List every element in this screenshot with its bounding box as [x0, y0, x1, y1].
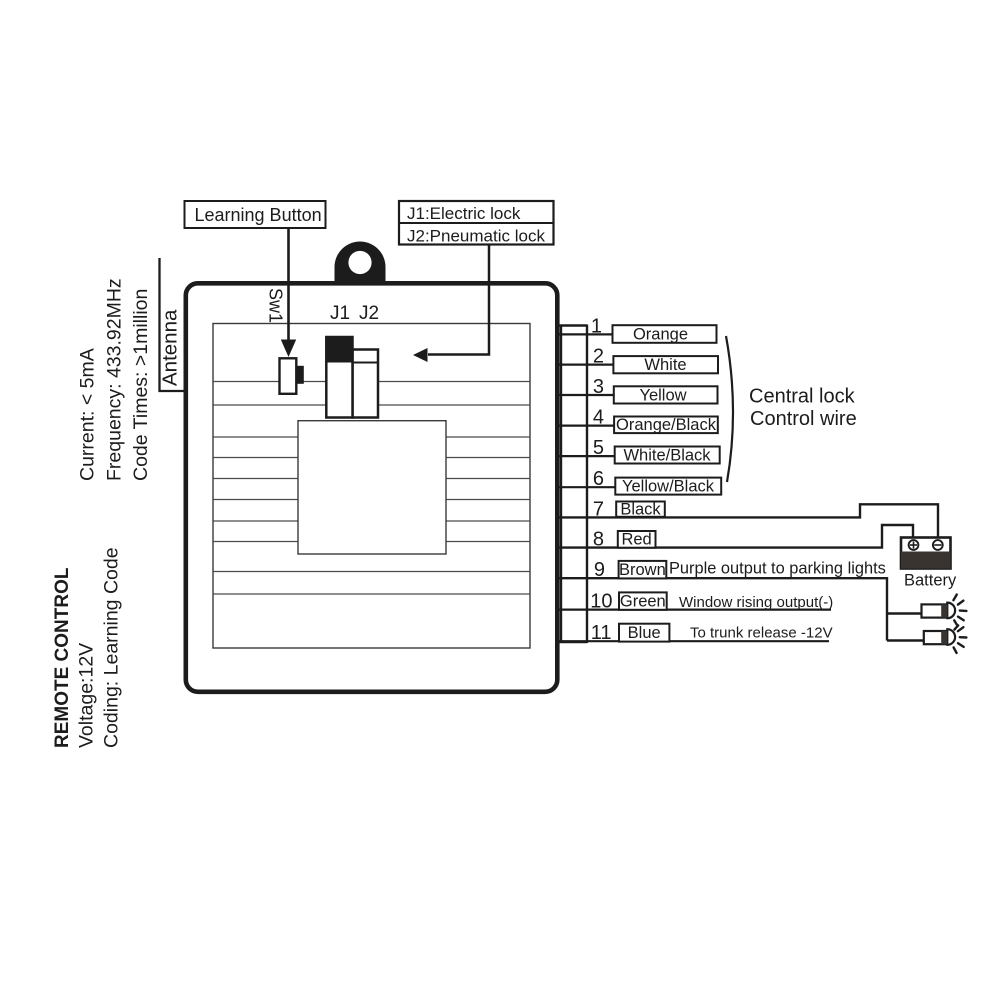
svg-text:J1: J1 [330, 303, 350, 324]
svg-text:Orange/Black: Orange/Black [616, 416, 717, 434]
svg-text:Frequency: 433.92MHz: Frequency: 433.92MHz [104, 278, 126, 481]
svg-text:2: 2 [593, 346, 604, 368]
svg-text:Control wire: Control wire [750, 408, 857, 430]
svg-text:Current: < 5mA: Current: < 5mA [77, 348, 99, 481]
svg-text:Black: Black [620, 500, 661, 518]
svg-text:Sw1: Sw1 [266, 288, 286, 323]
svg-text:Antenna: Antenna [159, 309, 182, 386]
svg-text:Green: Green [620, 593, 666, 611]
svg-text:Purple output to parking light: Purple output to parking lights [669, 560, 886, 578]
svg-text:10: 10 [590, 591, 612, 613]
svg-text:Central lock: Central lock [749, 386, 856, 408]
svg-text:Yellow: Yellow [639, 386, 686, 404]
svg-text:Window rising output(-): Window rising output(-) [679, 594, 833, 611]
svg-text:Voltage:12V: Voltage:12V [76, 643, 98, 748]
svg-text:1: 1 [591, 315, 602, 337]
svg-text:Battery: Battery [904, 572, 957, 590]
svg-text:J2: J2 [359, 303, 379, 324]
svg-text:8: 8 [593, 529, 604, 551]
svg-text:White: White [644, 356, 686, 374]
svg-text:5: 5 [593, 437, 604, 459]
svg-text:Coding: Learning Code: Coding: Learning Code [101, 547, 123, 748]
svg-text:7: 7 [593, 498, 604, 520]
svg-text:Orange: Orange [633, 326, 688, 344]
svg-text:White/Black: White/Black [623, 447, 711, 465]
svg-text:To trunk release -12V: To trunk release -12V [690, 625, 833, 642]
svg-text:9: 9 [594, 559, 605, 581]
svg-text:3: 3 [593, 376, 604, 398]
svg-text:Learning Button: Learning Button [195, 205, 322, 225]
svg-text:Yellow/Black: Yellow/Black [622, 478, 715, 496]
svg-text:J2:Pneumatic lock: J2:Pneumatic lock [407, 227, 545, 246]
svg-text:Blue: Blue [628, 624, 661, 642]
svg-text:Code Times: >1million: Code Times: >1million [130, 289, 152, 481]
svg-text:6: 6 [593, 468, 604, 490]
svg-text:J1:Electric lock: J1:Electric lock [407, 204, 521, 223]
svg-text:Brown: Brown [619, 561, 666, 579]
svg-text:Red: Red [621, 531, 651, 549]
svg-text:REMOTE CONTROL: REMOTE CONTROL [52, 567, 73, 748]
svg-text:4: 4 [593, 407, 604, 429]
svg-text:11: 11 [591, 622, 612, 644]
